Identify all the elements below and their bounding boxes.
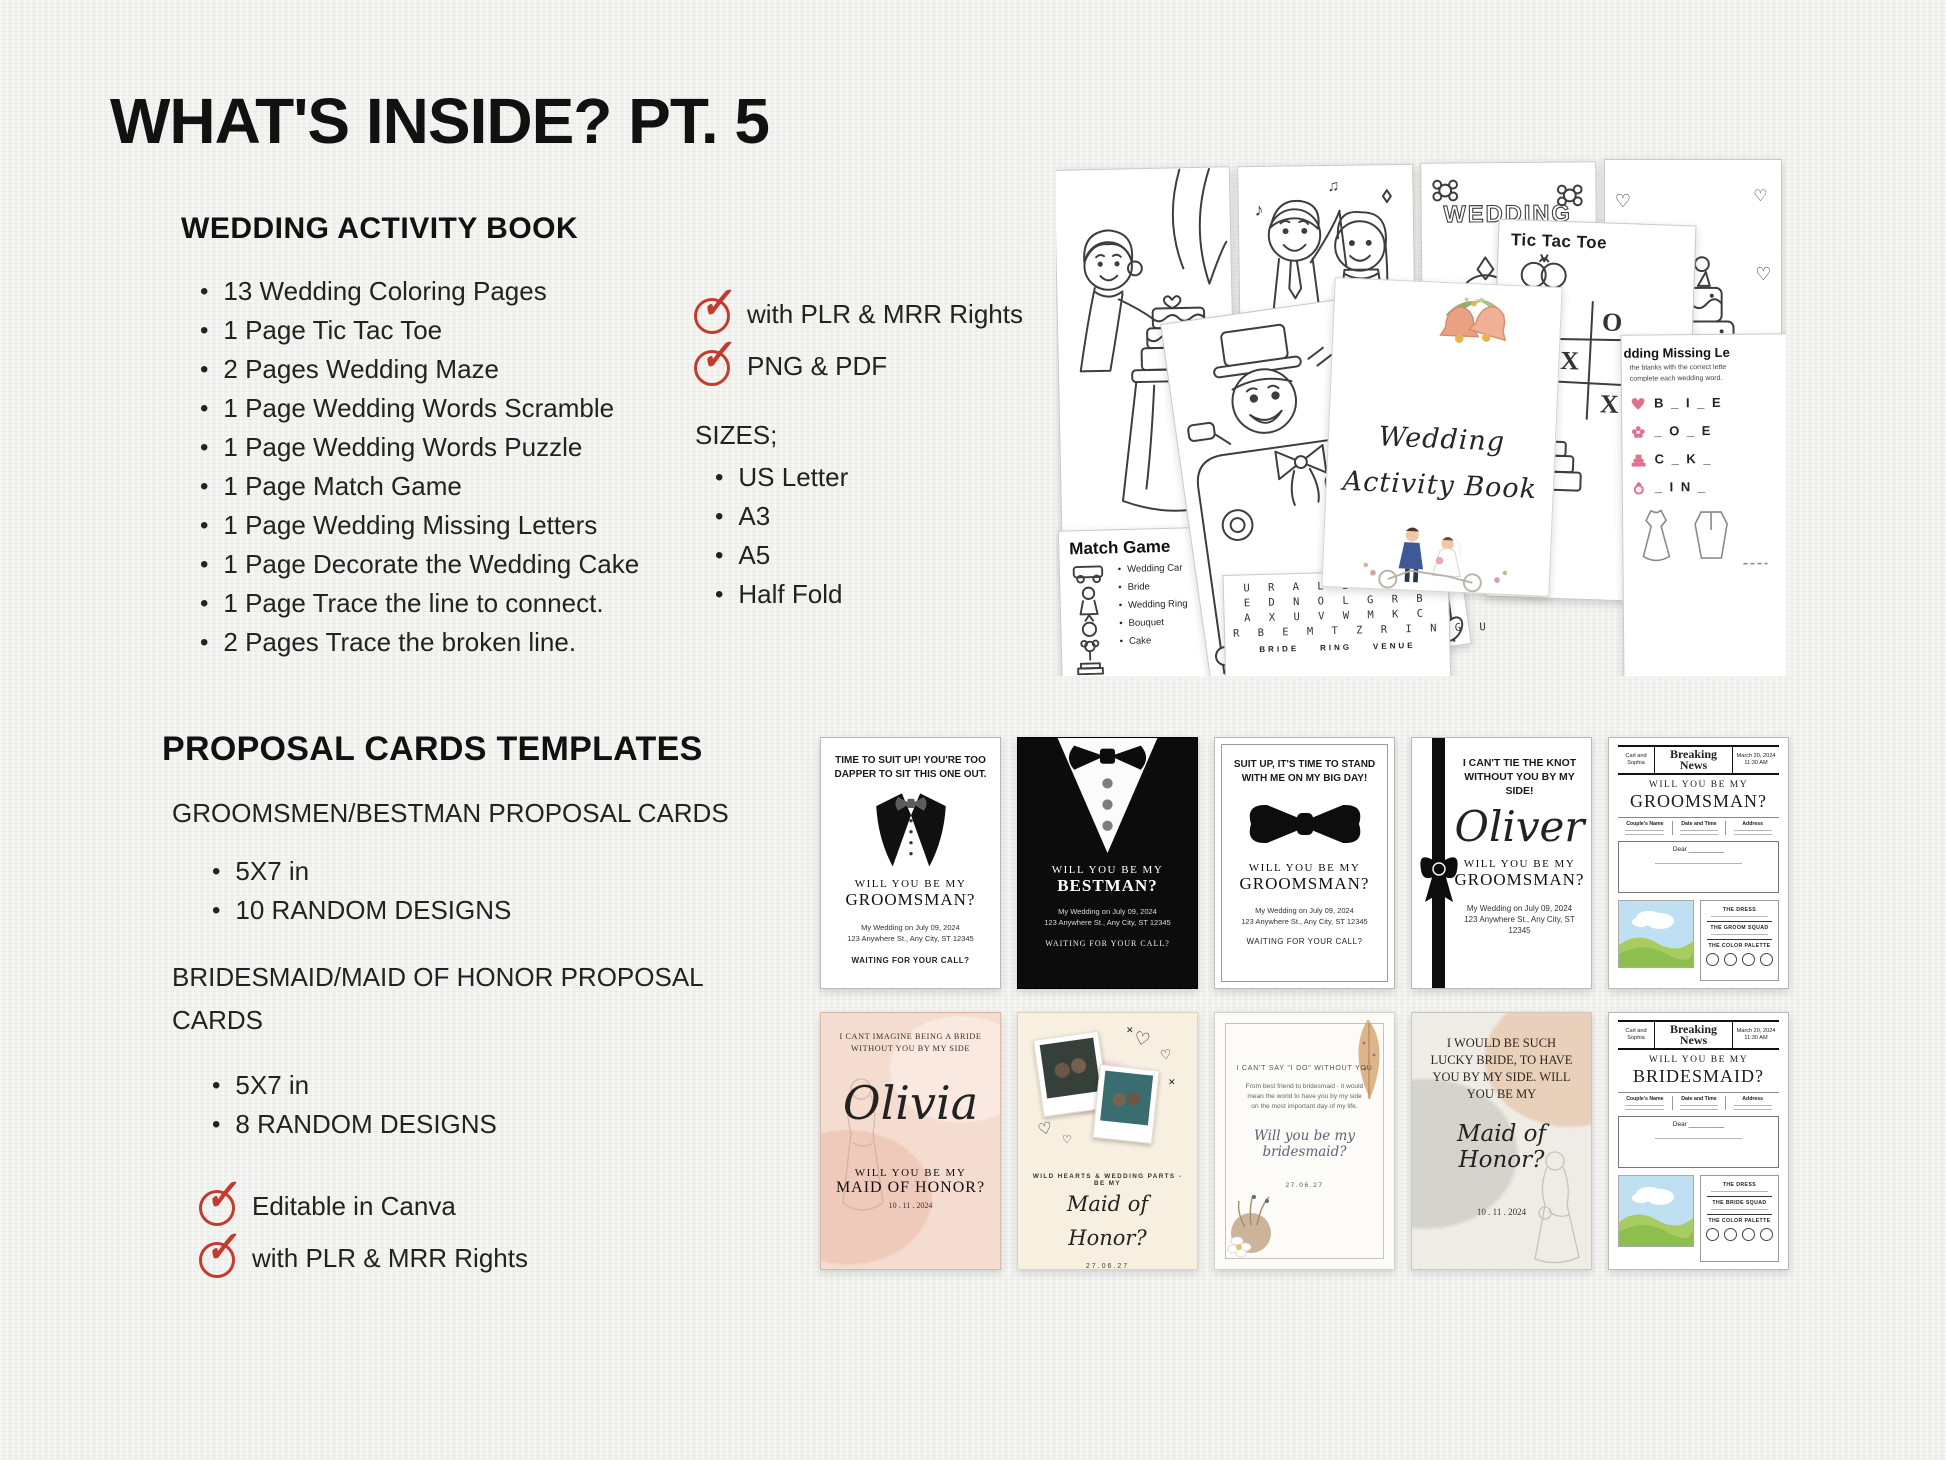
- news-section-title: THE COLOR PALETTE: [1705, 1218, 1774, 1224]
- proposal-card-polaroid: ♡ ♡ ♡ ♡ ✕ ✕ WILD HEARTS & WEDDING PARTS …: [1017, 1012, 1198, 1270]
- bullet-icon: •: [200, 506, 208, 545]
- news-datetime: March 20, 202411:30 AM: [1733, 1022, 1779, 1048]
- proposal-heading: PROPOSAL CARDS TEMPLATES: [162, 730, 703, 769]
- red-check-icon: ✓: [198, 1239, 236, 1277]
- bullet-icon: •: [200, 467, 208, 506]
- list-item: •10 RANDOM DESIGNS: [212, 891, 511, 930]
- list-item: •US Letter: [715, 458, 848, 497]
- tuxedo-icon: [865, 786, 957, 872]
- list-item: •2 Pages Trace the broken line.: [200, 623, 639, 662]
- card-role-line: BRIDESMAID?: [1618, 1066, 1779, 1087]
- bullet-icon: •: [200, 272, 208, 311]
- card-will-line: WILL YOU BE MY: [1052, 864, 1164, 876]
- missing-word: B _ I _ E: [1654, 395, 1723, 411]
- news-masthead: Breaking News: [1654, 747, 1733, 773]
- card-will-line: WILL YOU BE MY: [855, 878, 967, 890]
- card-will-line: WILL YOU BE MY: [1618, 780, 1779, 790]
- heart-icon: [1630, 396, 1646, 410]
- dear-label: Dear __________: [1673, 1121, 1724, 1128]
- news-date: March 20, 2024: [1737, 1028, 1776, 1034]
- card-date: 10 . 11 . 2024: [889, 1201, 933, 1210]
- missing-word: C _ K _: [1654, 451, 1712, 467]
- landscape-photo: [1618, 1175, 1694, 1247]
- dear-label: Dear __________: [1673, 846, 1724, 853]
- svg-text:♫: ♫: [1327, 178, 1339, 195]
- list-item-label: A3: [738, 497, 770, 536]
- heart-doodle: ♡: [1132, 1028, 1152, 1052]
- card-message: I CAN'T SAY "I DO" WITHOUT YOU: [1236, 1065, 1372, 1072]
- proposal-card-ribbon-name: I CAN'T TIE THE KNOT WITHOUT YOU BY MY S…: [1411, 737, 1592, 989]
- dress-suit-doodle: [1631, 503, 1772, 574]
- svg-text:♡: ♡: [1615, 191, 1631, 211]
- list-item: •1 Page Wedding Missing Letters: [200, 506, 639, 545]
- news-datetime: March 20, 202411:30 AM: [1733, 747, 1779, 773]
- list-item-label: 1 Page Wedding Missing Letters: [223, 506, 597, 545]
- card-body-text: From best friend to bridesmaid - it woul…: [1244, 1082, 1366, 1112]
- color-palette-circles: [1705, 953, 1774, 966]
- match-game-items: •Wedding Car •Bride •Wedding Ring •Bouqu…: [1118, 562, 1190, 674]
- bullet-icon: •: [212, 1066, 220, 1105]
- proposal-card-bowtie: SUIT UP, IT'S TIME TO STAND WITH ME ON M…: [1214, 737, 1395, 989]
- bullet-icon: •: [715, 497, 723, 536]
- card-footer: WAITING FOR YOUR CALL?: [1045, 939, 1170, 948]
- check-item: ✓ Editable in Canva: [198, 1180, 528, 1232]
- list-item: •A3: [715, 497, 848, 536]
- cover-title: Wedding Activity Book: [1342, 413, 1540, 513]
- newspaper-header: Carl and Sophia Breaking News March 20, …: [1618, 1020, 1779, 1050]
- list-item: •13 Wedding Coloring Pages: [200, 272, 639, 311]
- proposal-card-newspaper: Carl and Sophia Breaking News March 20, …: [1608, 1012, 1789, 1270]
- bullet-icon: •: [715, 458, 723, 497]
- list-item-label: 1 Page Match Game: [223, 467, 461, 506]
- ttt-cell: O: [1601, 307, 1622, 337]
- news-masthead: Breaking News: [1654, 1022, 1733, 1048]
- bullet-icon: •: [200, 350, 208, 389]
- list-item-label: US Letter: [738, 458, 848, 497]
- missing-word-row: _ O _ E: [1630, 422, 1786, 438]
- sparkle-doodle: ✕: [1168, 1077, 1176, 1088]
- news-section-title: THE GROOM SQUAD: [1705, 925, 1774, 931]
- match-item-label: Bride: [1128, 581, 1150, 593]
- card-role-script: Maid of Honor?: [1028, 1187, 1187, 1255]
- match-item: •Wedding Ring: [1119, 598, 1188, 611]
- cake-icon: [1630, 452, 1646, 466]
- list-item-label: 2 Pages Wedding Maze: [223, 350, 499, 389]
- news-section-title: THE DRESS: [1705, 907, 1774, 913]
- bullet-icon: •: [715, 536, 723, 575]
- card-will-line: WILL YOU BE MY: [855, 1167, 967, 1179]
- card-date: My Wedding on July 09, 2024: [1467, 903, 1572, 914]
- news-names: Carl and Sophia: [1618, 747, 1654, 773]
- ttt-cell: X: [1599, 389, 1619, 419]
- card-date: 27.06.27: [1086, 1263, 1129, 1270]
- list-item-label: 8 RANDOM DESIGNS: [235, 1105, 497, 1144]
- list-item: •5X7 in: [212, 1066, 497, 1105]
- red-check-icon: ✓: [693, 295, 731, 333]
- black-tux-icon: [1018, 738, 1197, 856]
- list-item-label: 1 Page Wedding Words Puzzle: [223, 428, 582, 467]
- missing-letters-instruction: complete each wedding word.: [1630, 374, 1786, 382]
- match-item: •Wedding Car: [1118, 562, 1187, 575]
- news-col-header: Address: [1729, 1096, 1776, 1102]
- bridesmaid-cards-row: I CANT IMAGINE BEING A BRIDE WITHOUT YOU…: [820, 1012, 1789, 1270]
- list-item: •Half Fold: [715, 575, 848, 614]
- news-col-header: Date and Time: [1676, 821, 1723, 827]
- check-item-label: PNG & PDF: [747, 351, 887, 382]
- list-item: •A5: [715, 536, 848, 575]
- bullet-icon: •: [1118, 564, 1122, 575]
- missing-word-row: _ I N _: [1631, 478, 1786, 494]
- list-item: •1 Page Tic Tac Toe: [200, 311, 639, 350]
- landscape-photo: [1618, 900, 1694, 968]
- list-item-label: Half Fold: [738, 575, 842, 614]
- missing-letters-page: dding Missing Le the blanks with the cor…: [1620, 333, 1786, 676]
- news-side-panel: THE DRESS THE BRIDE SQUAD THE COLOR PALE…: [1700, 1175, 1779, 1262]
- card-date: My Wedding on July 09, 2024: [861, 922, 960, 933]
- list-item-label: 13 Wedding Coloring Pages: [223, 272, 546, 311]
- red-check-icon: ✓: [198, 1187, 236, 1225]
- list-item-label: 5X7 in: [235, 1066, 309, 1105]
- news-section-title: THE COLOR PALETTE: [1705, 943, 1774, 949]
- groomsmen-subheading: GROOMSMEN/BESTMAN PROPOSAL CARDS: [172, 798, 729, 829]
- heart-doodle: ♡: [1159, 1046, 1173, 1063]
- list-item-label: 5X7 in: [235, 852, 309, 891]
- bullet-icon: •: [200, 584, 208, 623]
- bullet-icon: •: [200, 311, 208, 350]
- card-address: 123 Anywhere St., Any City, ST 12345: [1044, 917, 1170, 928]
- missing-word: _ O _ E: [1654, 423, 1712, 439]
- news-columns: Couple's Name Date and Time Address: [1618, 1092, 1779, 1110]
- list-item-label: 2 Pages Trace the broken line.: [223, 623, 576, 662]
- list-item: •1 Page Wedding Words Scramble: [200, 389, 639, 428]
- sizes-list: •US Letter •A3 •A5 •Half Fold: [715, 458, 848, 614]
- bullet-icon: •: [200, 428, 208, 467]
- card-tagline: WILD HEARTS & WEDDING PARTS - BE MY: [1028, 1173, 1187, 1187]
- bullet-icon: •: [200, 545, 208, 584]
- page-title: WHAT'S INSIDE? PT. 5: [110, 84, 769, 158]
- proposal-card-bestman-black: WILL YOU BE MY BESTMAN? My Wedding on Ju…: [1017, 737, 1198, 989]
- card-message: I CANT IMAGINE BEING A BRIDE WITHOUT YOU…: [833, 1031, 988, 1055]
- card-address: 123 Anywhere St., Any City, ST 12345: [1458, 914, 1581, 936]
- card-role-line: MAID OF HONOR?: [836, 1179, 985, 1197]
- bullet-icon: •: [1120, 636, 1124, 647]
- check-item-label: Editable in Canva: [252, 1191, 456, 1222]
- missing-word-row: C _ K _: [1630, 450, 1786, 466]
- polaroid-photo: [1092, 1064, 1159, 1144]
- news-section-title: THE DRESS: [1705, 1182, 1774, 1188]
- card-address: 123 Anywhere St., Any City, ST 12345: [847, 933, 973, 944]
- bullet-icon: •: [1119, 600, 1123, 611]
- card-role-line: GROOMSMAN?: [1240, 874, 1370, 894]
- groomsmen-cards-row: TIME TO SUIT UP! YOU'RE TOO DAPPER TO SI…: [820, 737, 1789, 989]
- groomsmen-list: •5X7 in •10 RANDOM DESIGNS: [212, 852, 511, 930]
- bullet-icon: •: [200, 389, 208, 428]
- proposal-card-tux-white: TIME TO SUIT UP! YOU'RE TOO DAPPER TO SI…: [820, 737, 1001, 989]
- missing-letters-instruction: the blanks with the correct lette: [1630, 363, 1786, 371]
- news-col-header: Date and Time: [1676, 1096, 1723, 1102]
- bow-tie-icon: [1243, 796, 1367, 852]
- news-names: Carl and Sophia: [1618, 1022, 1654, 1048]
- card-footer: WAITING FOR YOUR CALL?: [1247, 937, 1363, 946]
- card-will-line: WILL YOU BE MY: [1249, 862, 1361, 874]
- bullet-icon: •: [212, 891, 220, 930]
- card-footer: WAITING FOR YOUR CALL?: [852, 956, 970, 965]
- activity-book-collage: ♪ ♫ ♪ ♫ WEDDING ♡ ♡: [1056, 156, 1786, 676]
- check-item: ✓ with PLR & MRR Rights: [198, 1232, 528, 1284]
- list-item-label: 1 Page Trace the line to connect.: [223, 584, 603, 623]
- news-dear-box: Dear __________: [1618, 1116, 1779, 1168]
- flower-icon: [1630, 424, 1646, 438]
- list-item: •2 Pages Wedding Maze: [200, 350, 639, 389]
- activity-book-list: •13 Wedding Coloring Pages •1 Page Tic T…: [200, 272, 639, 662]
- news-time: 11:30 AM: [1744, 760, 1767, 766]
- missing-word: _ I N _: [1655, 479, 1707, 494]
- bullet-icon: •: [212, 852, 220, 891]
- proposal-card-watercolor: I WOULD BE SUCH LUCKY BRIDE, TO HAVE YOU…: [1411, 1012, 1592, 1270]
- proposal-card-blush-name: I CANT IMAGINE BEING A BRIDE WITHOUT YOU…: [820, 1012, 1001, 1270]
- match-game-doodles: [1070, 562, 1111, 675]
- check-item-label: with PLR & MRR Rights: [747, 299, 1023, 330]
- card-will-line: WILL YOU BE MY: [1618, 1055, 1779, 1065]
- card-role-line: GROOMSMAN?: [1618, 791, 1779, 812]
- list-item-label: A5: [738, 536, 770, 575]
- card-date: 10 . 11 . 2024: [1477, 1207, 1526, 1217]
- newspaper-header: Carl and Sophia Breaking News March 20, …: [1618, 745, 1779, 775]
- list-item: •1 Page Match Game: [200, 467, 639, 506]
- news-section-title: THE BRIDE SQUAD: [1705, 1200, 1774, 1206]
- sizes-label: SIZES;: [695, 420, 777, 451]
- news-time: 11:30 AM: [1744, 1035, 1767, 1041]
- svg-text:♪: ♪: [1254, 200, 1263, 220]
- bridesmaid-subheading: BRIDESMAID/MAID OF HONOR PROPOSAL CARDS: [172, 956, 762, 1042]
- card-role-line: BESTMAN?: [1057, 876, 1158, 896]
- card-message: SUIT UP, IT'S TIME TO STAND WITH ME ON M…: [1229, 758, 1380, 786]
- canva-checklist: ✓ Editable in Canva ✓ with PLR & MRR Rig…: [198, 1180, 528, 1284]
- activity-book-cover: Wedding Activity Book: [1321, 277, 1562, 597]
- card-role-line: GROOMSMAN?: [846, 890, 976, 910]
- card-name-script: Olivia: [843, 1055, 978, 1151]
- ttt-cell: X: [1560, 346, 1580, 376]
- card-will-line: WILL YOU BE MY: [1464, 858, 1576, 870]
- cover-title-line2: Activity Book: [1342, 459, 1538, 513]
- card-message: I CAN'T TIE THE KNOT WITHOUT YOU BY MY S…: [1458, 756, 1581, 798]
- news-col-header: Couple's Name: [1621, 821, 1669, 827]
- missing-letters-title: dding Missing Le: [1624, 344, 1786, 360]
- news-side-panel: THE DRESS THE GROOM SQUAD THE COLOR PALE…: [1700, 900, 1779, 981]
- list-item: •8 RANDOM DESIGNS: [212, 1105, 497, 1144]
- ring-icon: [1631, 480, 1647, 494]
- wedding-bells-icon: [1414, 290, 1537, 355]
- news-col-header: Couple's Name: [1621, 1096, 1669, 1102]
- bullet-icon: •: [212, 1105, 220, 1144]
- bullet-icon: •: [200, 623, 208, 662]
- activity-book-heading: WEDDING ACTIVITY BOOK: [181, 212, 578, 246]
- card-message: I WOULD BE SUCH LUCKY BRIDE, TO HAVE YOU…: [1428, 1035, 1575, 1103]
- sparkle-doodle: ✕: [1126, 1025, 1134, 1036]
- match-item: •Bouquet: [1119, 616, 1188, 629]
- check-item-label: with PLR & MRR Rights: [252, 1243, 528, 1274]
- match-item-label: Wedding Car: [1127, 562, 1183, 574]
- color-palette-circles: [1705, 1228, 1774, 1241]
- heart-doodle: ♡: [1062, 1133, 1072, 1146]
- bullet-icon: •: [1118, 582, 1122, 593]
- svg-text:♡: ♡: [1753, 188, 1767, 205]
- card-date: My Wedding on July 09, 2024: [1255, 905, 1354, 916]
- svg-text:♡: ♡: [1755, 264, 1771, 284]
- news-columns: Couple's Name Date and Time Address: [1618, 817, 1779, 835]
- list-item: •1 Page Decorate the Wedding Cake: [200, 545, 639, 584]
- card-date: My Wedding on July 09, 2024: [1058, 906, 1157, 917]
- match-item-label: Bouquet: [1128, 617, 1164, 629]
- flyer-canvas: WHAT'S INSIDE? PT. 5 WEDDING ACTIVITY BO…: [0, 0, 1946, 1460]
- card-name-script: Oliver: [1455, 800, 1585, 854]
- card-address: 123 Anywhere St., Any City, ST 12345: [1241, 916, 1367, 927]
- card-script-line: Maid of Honor?: [1428, 1121, 1575, 1173]
- match-item-label: Cake: [1129, 635, 1151, 647]
- bullet-icon: •: [1119, 618, 1123, 629]
- news-col-header: Address: [1729, 821, 1776, 827]
- missing-word-row: B _ I _ E: [1630, 394, 1786, 410]
- news-dear-box: Dear __________: [1618, 841, 1779, 893]
- news-date: March 20, 2024: [1737, 753, 1776, 759]
- match-item: •Cake: [1120, 634, 1189, 647]
- list-item: •1 Page Trace the line to connect.: [200, 584, 639, 623]
- card-message: TIME TO SUIT UP! YOU'RE TOO DAPPER TO SI…: [833, 754, 988, 782]
- list-item-label: 10 RANDOM DESIGNS: [235, 891, 511, 930]
- proposal-card-boho: I CAN'T SAY "I DO" WITHOUT YOU From best…: [1214, 1012, 1395, 1270]
- list-item-label: 1 Page Tic Tac Toe: [223, 311, 442, 350]
- list-item: •5X7 in: [212, 852, 511, 891]
- match-item: •Bride: [1118, 580, 1187, 593]
- card-date: 27.06.27: [1285, 1182, 1323, 1189]
- rights-checklist: ✓ with PLR & MRR Rights ✓ PNG & PDF: [693, 288, 1023, 392]
- word-search-answers: BRIDE RING VENUE: [1233, 640, 1441, 654]
- bullet-icon: •: [715, 575, 723, 614]
- list-item: •1 Page Wedding Words Puzzle: [200, 428, 639, 467]
- proposal-card-newspaper: Carl and Sophia Breaking News March 20, …: [1608, 737, 1789, 989]
- red-check-icon: ✓: [693, 347, 731, 385]
- list-item-label: 1 Page Decorate the Wedding Cake: [223, 545, 639, 584]
- card-script-line: Will you be my bridesmaid?: [1233, 1128, 1376, 1160]
- couple-illustration: [1350, 519, 1523, 594]
- check-item: ✓ PNG & PDF: [693, 340, 1023, 392]
- bridesmaid-list: •5X7 in •8 RANDOM DESIGNS: [212, 1066, 497, 1144]
- check-item: ✓ with PLR & MRR Rights: [693, 288, 1023, 340]
- match-item-label: Wedding Ring: [1128, 598, 1188, 611]
- card-role-line: GROOMSMAN?: [1455, 870, 1585, 890]
- list-item-label: 1 Page Wedding Words Scramble: [223, 389, 614, 428]
